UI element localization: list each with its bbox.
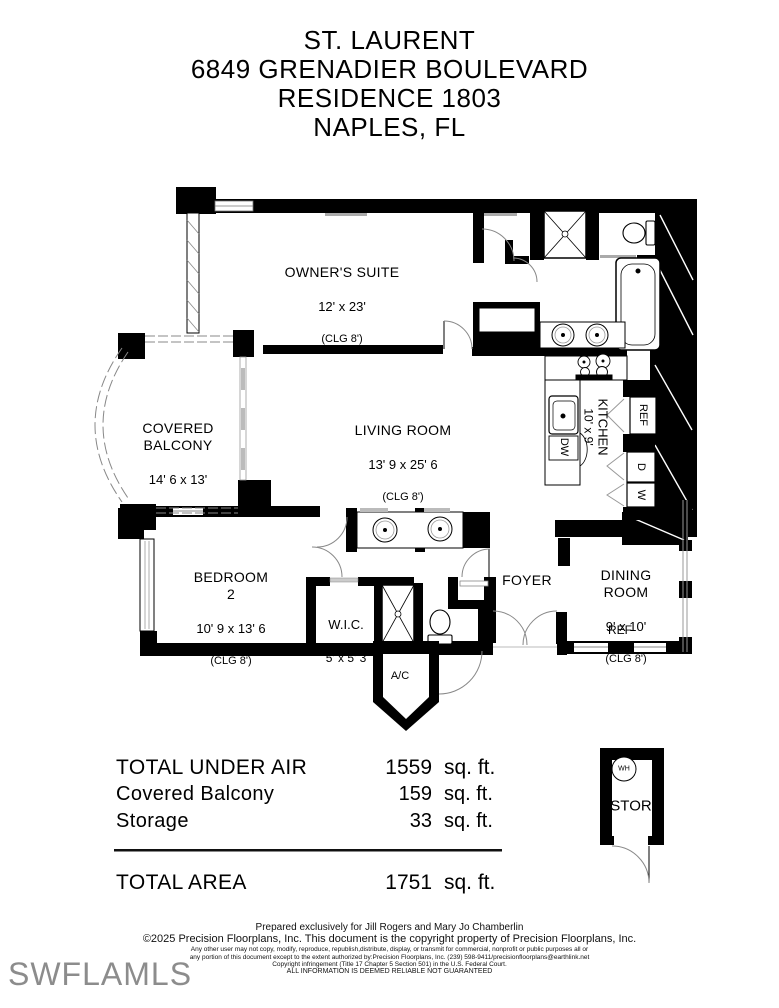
wic-label: W.I.C. 5' x 5' 3	[326, 599, 367, 683]
covered-balcony-unit: sq. ft.	[444, 783, 493, 806]
total-area-value: 1751	[318, 871, 432, 895]
ac-closet	[373, 641, 439, 731]
water-heater-label: WH	[618, 766, 630, 773]
living-room-label: LIVING ROOM 13' 9 x 25' 6 (CLG 8')	[355, 404, 452, 522]
ac-label: A/C	[391, 670, 409, 682]
cooktop	[545, 354, 627, 380]
foyer-closet-shelf	[460, 581, 488, 586]
totals-divider	[114, 849, 502, 852]
total-under-air-value: 1559	[318, 756, 432, 780]
total-under-air-label: TOTAL UNDER AIR	[116, 756, 307, 780]
dishwasher-label: DW	[558, 438, 570, 456]
storage-area-label: Storage	[116, 810, 189, 833]
floorplan-page: { "header": { "line1": "ST. LAURENT", "l…	[0, 0, 779, 1008]
covered-balcony-value: 159	[318, 783, 432, 806]
total-area-unit: sq. ft.	[444, 871, 495, 895]
covered-balcony-label: COVERED BALCONY 14' 6 x 13'	[142, 402, 213, 506]
owner-bath-shower	[544, 211, 586, 258]
total-under-air-unit: sq. ft.	[444, 756, 495, 780]
storage-value: 33	[318, 810, 432, 833]
mls-watermark: SWFLAMLS	[8, 956, 192, 993]
owner-suite-window-wall	[187, 213, 199, 333]
kitchen-label: KITCHEN 10' x 9'	[582, 398, 611, 455]
total-area-label: TOTAL AREA	[116, 871, 247, 895]
footer-terms-1: Any other user may not copy, modify, rep…	[0, 946, 779, 953]
foyer-label: FOYER	[502, 572, 552, 589]
storage-label: STOR	[610, 798, 651, 815]
wic-door-mark	[330, 578, 358, 582]
dryer-label: D	[635, 463, 647, 471]
footer-copyright: ©2025 Precision Floorplans, Inc. This do…	[0, 933, 779, 945]
bath2-toilet	[428, 610, 452, 644]
owner-bath-toilet	[623, 221, 655, 245]
bedroom2-label: BEDROOM 2 10' 9 x 13' 6 (CLG 8')	[194, 551, 268, 686]
dining-room-label: DINING ROOM 9' x 10' (CLG 8')	[601, 549, 652, 684]
ref-dining-label: REF	[608, 623, 632, 637]
ref-kitchen-label: REF	[637, 404, 649, 426]
bath2-shower	[382, 585, 414, 643]
washer-label: W	[635, 490, 647, 500]
storage-unit-label: sq. ft.	[444, 810, 493, 833]
owners-suite-label: OWNER'S SUITE 12' x 23' (CLG 8')	[285, 246, 400, 364]
kitchen-sink	[549, 396, 578, 434]
covered-balcony-area-label: Covered Balcony	[116, 783, 274, 806]
footer-prepared-for: Prepared exclusively for Jill Rogers and…	[0, 922, 779, 933]
storage-unit	[600, 748, 664, 883]
